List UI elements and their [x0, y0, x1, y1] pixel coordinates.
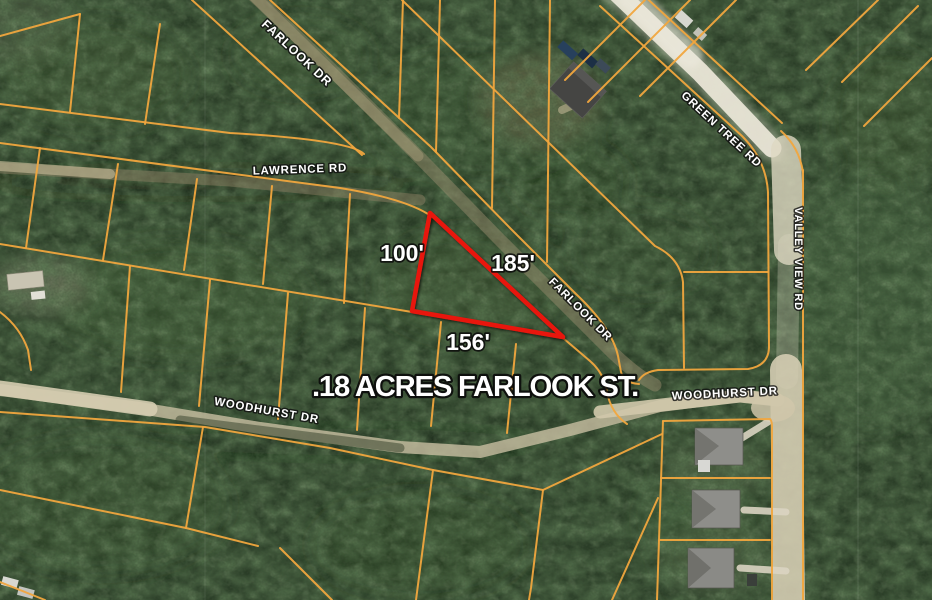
house — [692, 490, 740, 528]
satellite-map: FARLOOK DR LAWRENCE RD GREEN TREE RD VAL… — [0, 0, 932, 600]
driveway — [740, 568, 786, 571]
map-canvas: FARLOOK DR LAWRENCE RD GREEN TREE RD VAL… — [0, 0, 932, 600]
listing-title: .18 ACRES FARLOOK ST. — [312, 371, 638, 403]
driveway — [744, 510, 786, 512]
street-label-valley-view-rd: VALLEY VIEW RD — [792, 207, 804, 311]
dimension-label-156ft: 156' — [446, 329, 490, 355]
vehicle — [747, 574, 757, 586]
dimension-label-100ft: 100' — [380, 240, 424, 266]
dimension-label-185ft: 185' — [491, 250, 535, 276]
